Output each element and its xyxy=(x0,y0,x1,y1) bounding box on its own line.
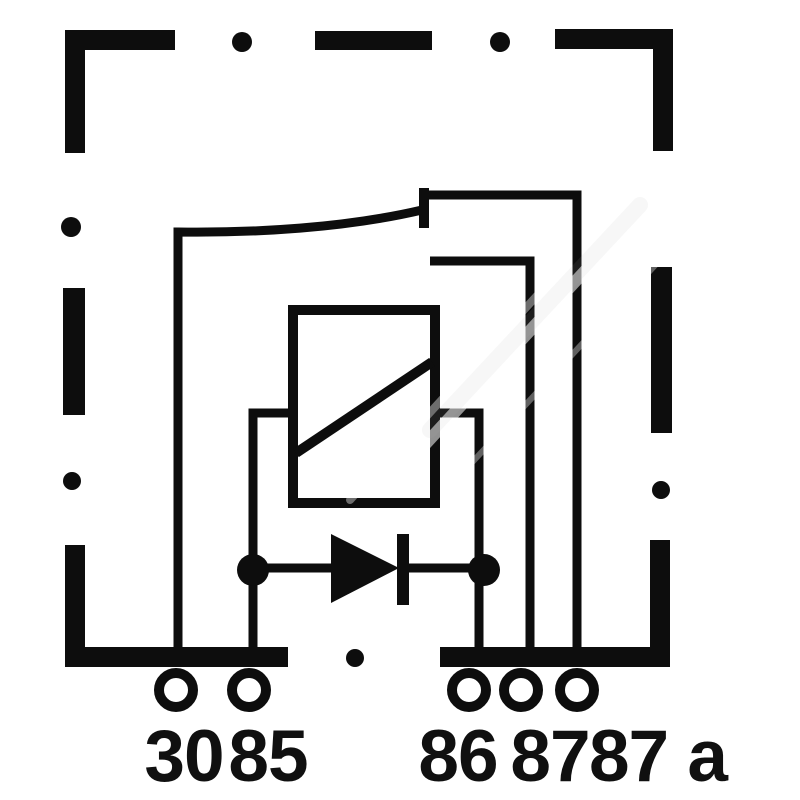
wire-coil-terminal-85 xyxy=(253,413,290,649)
terminal-pin-30 xyxy=(159,673,193,707)
terminal-pin-87a xyxy=(560,673,594,707)
housing-dot-right xyxy=(652,481,670,499)
armature-contact-tip xyxy=(419,188,429,228)
terminal-pins xyxy=(159,673,594,707)
terminal-label-85: 85 xyxy=(228,716,307,797)
terminal-label-30: 30 xyxy=(144,716,223,797)
housing-dot-top-2 xyxy=(490,32,510,52)
junction-dot-85 xyxy=(237,554,269,586)
housing-dot-top-1 xyxy=(232,32,252,52)
housing-corner-top-left xyxy=(65,30,175,153)
terminal-pin-86 xyxy=(452,673,486,707)
housing-dash-top xyxy=(315,31,432,50)
housing-dot-left-1 xyxy=(61,217,81,237)
housing-dot-bottom xyxy=(346,649,364,667)
relay-schematic-canvas: 30 85 86 87 87 a xyxy=(0,0,800,800)
terminal-label-87: 87 xyxy=(510,716,589,797)
relay-diagram: 30 85 86 87 87 a xyxy=(0,0,800,800)
suppression-diode xyxy=(331,534,409,605)
junction-dot-86 xyxy=(468,554,500,586)
terminal-pin-87 xyxy=(504,673,538,707)
diode-triangle xyxy=(331,534,399,603)
terminal-label-87a: 87 a xyxy=(589,716,729,797)
diode-cathode-bar xyxy=(397,534,409,605)
housing-dash-left xyxy=(63,288,85,415)
housing-corner-top-right xyxy=(555,29,673,151)
housing-dash-right xyxy=(651,267,672,433)
relay-coil xyxy=(293,310,435,503)
terminal-pin-85 xyxy=(232,673,266,707)
terminal-label-86: 86 xyxy=(418,716,497,797)
wire-coil-terminal-86 xyxy=(438,413,479,649)
housing-dot-left-2 xyxy=(63,472,81,490)
